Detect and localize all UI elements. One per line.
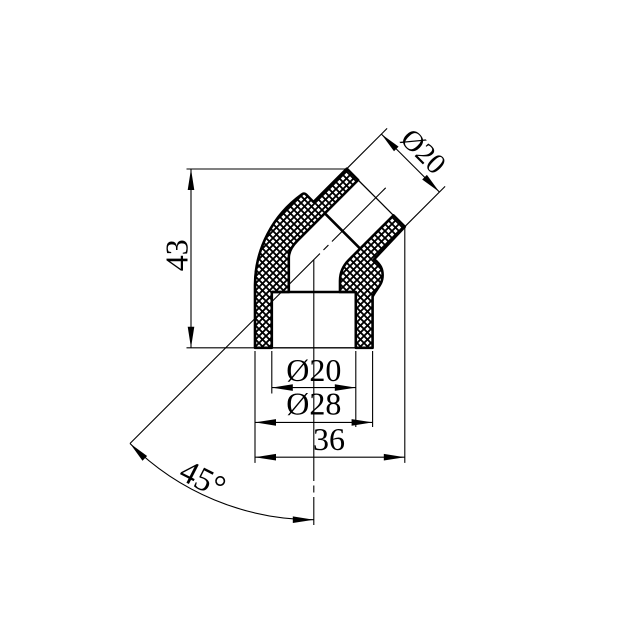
svg-text:36: 36 — [313, 421, 345, 457]
svg-text:43: 43 — [159, 239, 195, 271]
svg-text:Ø20: Ø20 — [286, 352, 341, 388]
svg-text:Ø28: Ø28 — [286, 386, 341, 422]
